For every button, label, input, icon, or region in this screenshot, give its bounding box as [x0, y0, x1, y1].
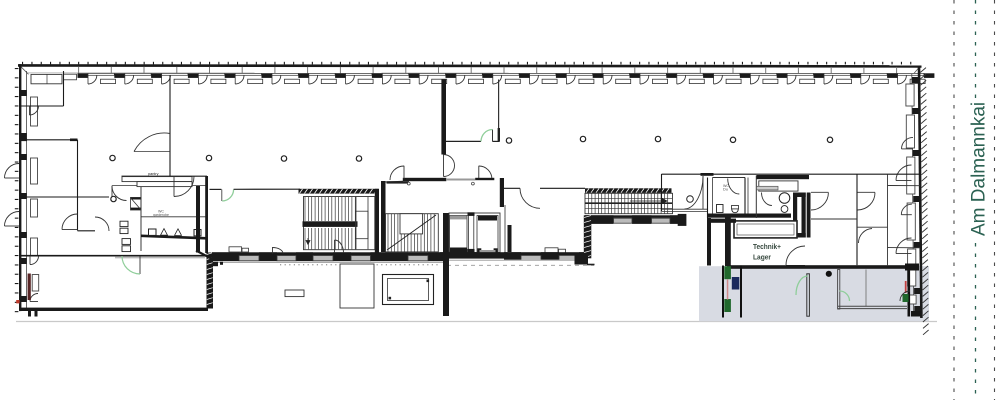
svg-text:Lager: Lager	[753, 253, 771, 262]
svg-text:garderobe: garderobe	[153, 213, 169, 217]
svg-text:Du: Du	[723, 187, 728, 191]
svg-text:Technik+: Technik+	[753, 242, 782, 251]
svg-text:Am Dalmannkai: Am Dalmannkai	[969, 102, 990, 236]
svg-text:pantry: pantry	[148, 171, 159, 176]
